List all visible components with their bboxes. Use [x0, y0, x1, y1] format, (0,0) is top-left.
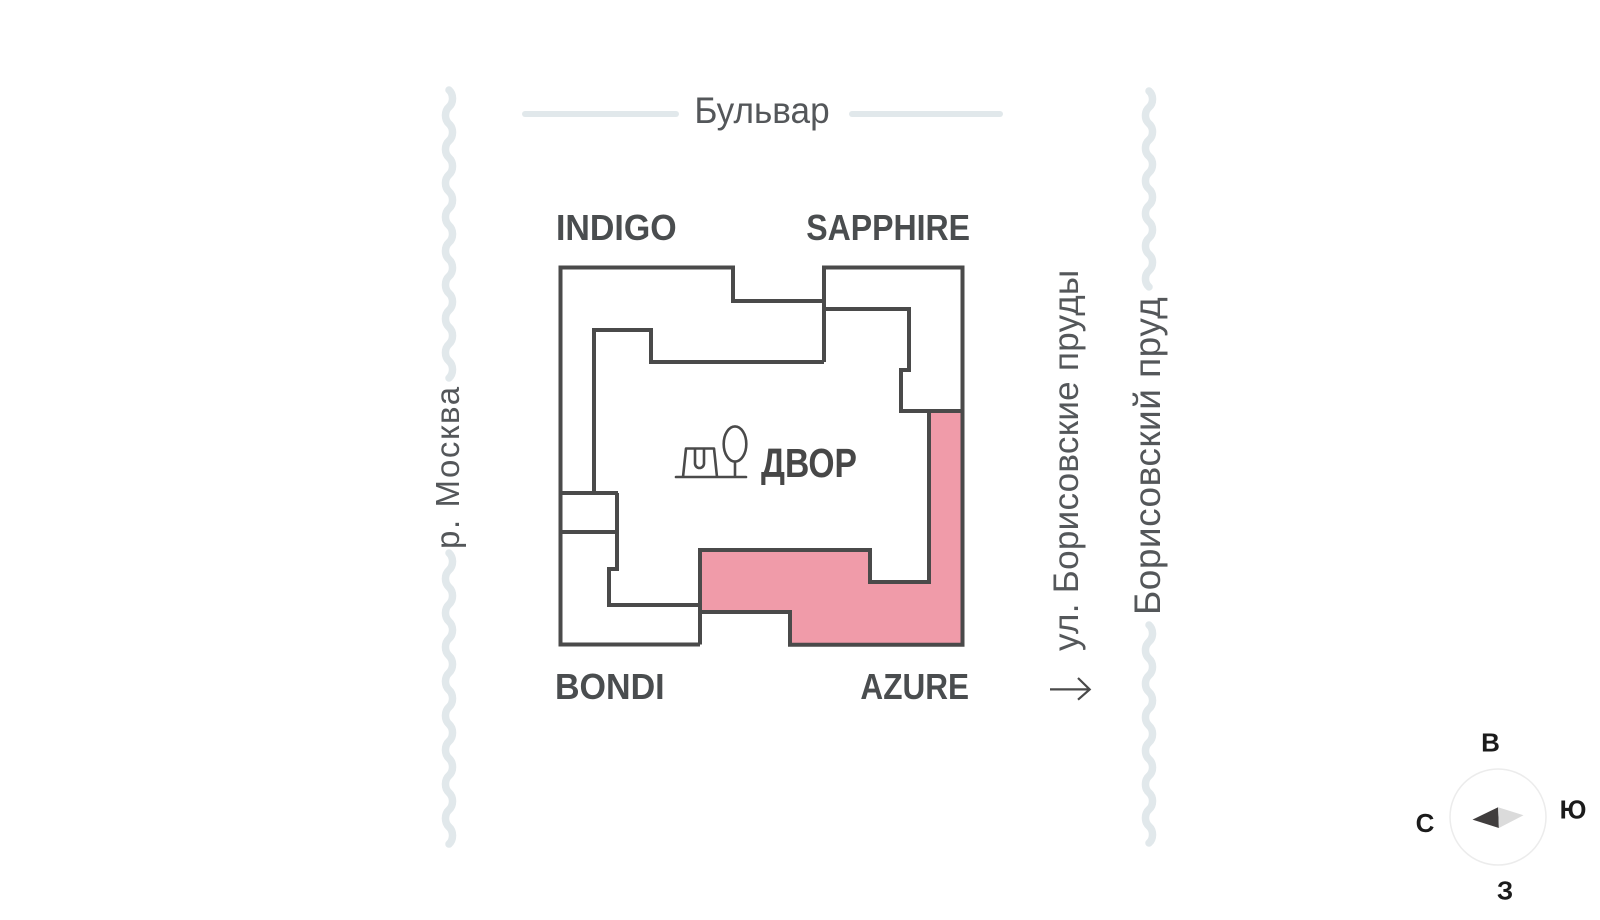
svg-text:Борисовский пруд: Борисовский пруд	[1127, 297, 1168, 615]
svg-text:Ю: Ю	[1560, 794, 1587, 824]
svg-text:BONDI: BONDI	[555, 667, 665, 707]
svg-text:ДВОР: ДВОР	[761, 440, 857, 486]
svg-text:AZURE: AZURE	[860, 667, 969, 707]
svg-text:INDIGO: INDIGO	[556, 208, 677, 248]
svg-text:З: З	[1497, 876, 1513, 906]
svg-text:Бульвар: Бульвар	[694, 89, 829, 131]
svg-text:В: В	[1481, 728, 1500, 758]
svg-text:р. Москва: р. Москва	[429, 385, 466, 549]
svg-text:ул. Борисовские пруды: ул. Борисовские пруды	[1047, 270, 1086, 651]
svg-text:SAPPHIRE: SAPPHIRE	[806, 208, 970, 248]
svg-text:С: С	[1416, 808, 1435, 838]
